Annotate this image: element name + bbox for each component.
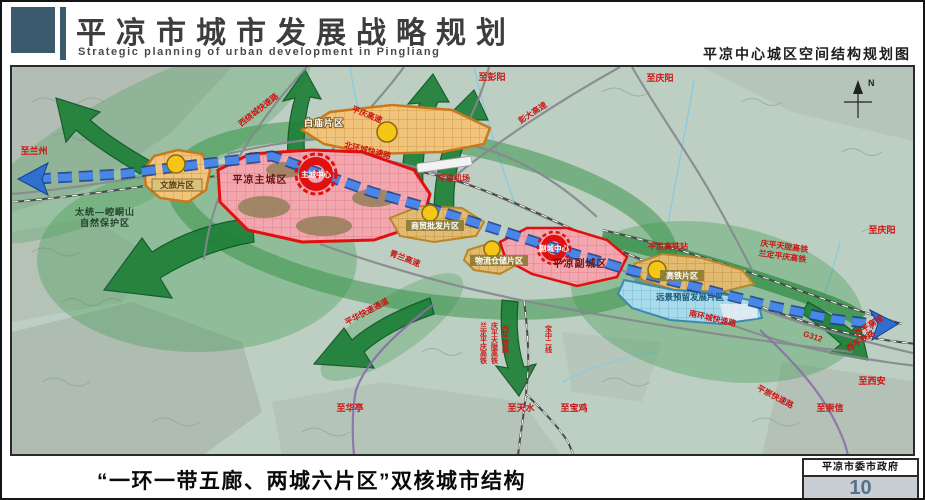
planning-map: 文旅片区 白庙片区 平凉主城区 主城中心 商贸批发片区 物流仓储片区 平凉副城区… <box>10 65 915 456</box>
hsr-station-label: 平凉高铁站 <box>648 241 688 251</box>
dir-label-chongxin: 至崇信 <box>816 402 843 413</box>
dir-label-pengyang: 至彭阳 <box>478 71 505 82</box>
rail-label-xiping-vert: 西平铁路 <box>501 325 509 354</box>
planning-slide: 平凉市城市发展战略规划 Strategic planning of urban … <box>0 0 925 500</box>
page-number: 10 <box>804 477 917 499</box>
page-number-box: 平凉市委市政府 10 <box>802 458 919 499</box>
nature-reserve-line1: 太统—崆峒山 <box>74 206 135 217</box>
logo-square-icon <box>11 7 55 53</box>
organization-label: 平凉市委市政府 <box>804 460 917 477</box>
core-label-main: 主城中心 <box>301 169 331 179</box>
compass-n-label: N <box>868 78 875 88</box>
zone-label-yuanjing: 远景预留发展片区 <box>656 292 725 302</box>
dir-label-xian: 至西安 <box>858 375 885 386</box>
dir-label-baoji: 至宝鸡 <box>560 402 587 413</box>
dir-label-lanzhou: 至兰州 <box>20 145 47 156</box>
dir-label-qingyang-e: 至庆阳 <box>868 224 895 235</box>
zone-label-shangmao: 商贸批发片区 <box>411 221 459 231</box>
rail-label-baozhong-vert: 宝中二线 <box>545 324 553 354</box>
nature-reserve-line2: 自然保护区 <box>80 217 130 228</box>
zone-label-sub-city: 平凉副城区 <box>553 257 608 270</box>
dir-label-huating: 至华亭 <box>336 402 363 413</box>
zone-label-main-city: 平凉主城区 <box>233 173 288 186</box>
dir-label-qingyang-n: 至庆阳 <box>646 72 673 83</box>
core-label-sub: 副城中心 <box>539 243 569 253</box>
zone-label-wuliu: 物流仓储片区 <box>475 256 523 266</box>
zone-label-gaotie: 高铁片区 <box>666 271 698 281</box>
slide-caption: “一环一带五廊、两城六片区”双核城市结构 <box>97 465 526 495</box>
page-subtitle: Strategic planning of urban development … <box>78 46 441 58</box>
map-title: 平凉中心城区空间结构规划图 <box>703 44 911 64</box>
airport-label: 平凉机场 <box>438 173 470 183</box>
dir-label-tianshui: 至天水 <box>507 402 535 413</box>
logo-bar-icon <box>60 7 66 60</box>
zone-label-wenlv: 文旅片区 <box>160 180 195 190</box>
zone-label-baimiao: 白庙片区 <box>304 117 344 128</box>
